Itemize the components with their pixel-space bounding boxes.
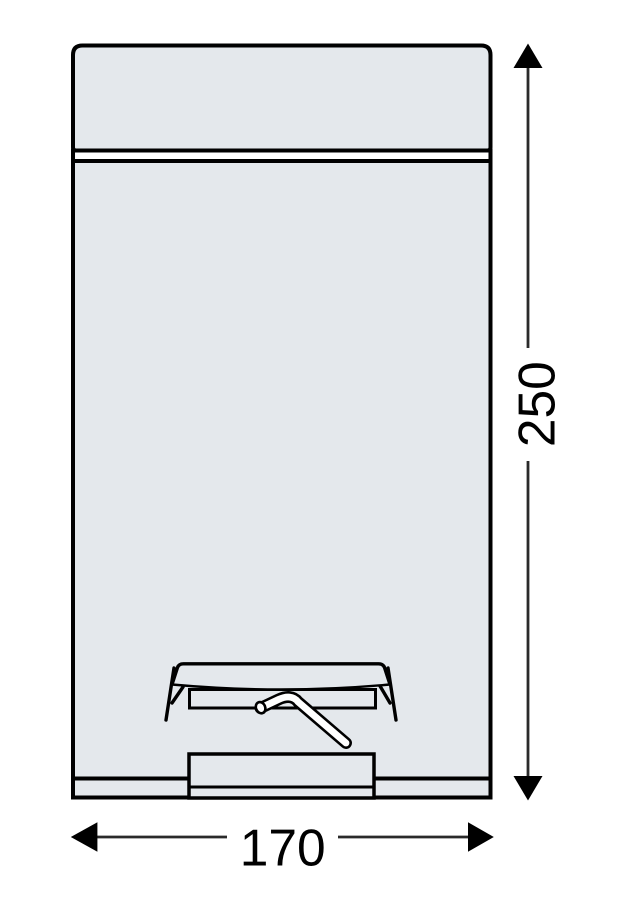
svg-text:250: 250	[508, 361, 566, 447]
svg-text:170: 170	[240, 819, 326, 877]
